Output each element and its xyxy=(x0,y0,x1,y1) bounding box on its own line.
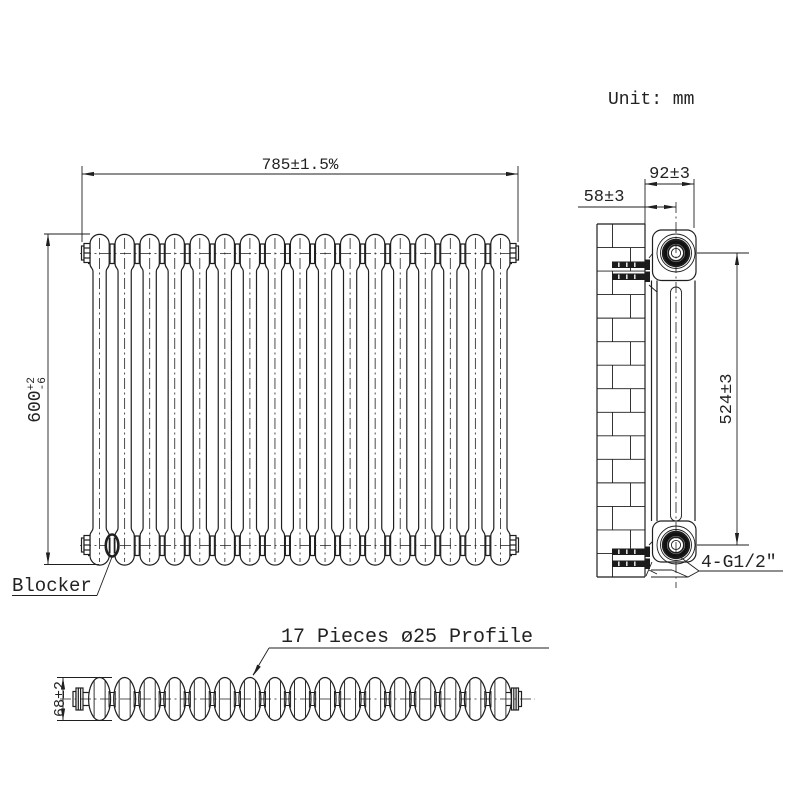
bung-top-left xyxy=(82,244,91,263)
front-width-dim-label: 785±1.5% xyxy=(262,156,339,174)
side-depth-dim-label: 92±3 xyxy=(649,165,690,184)
side-wall-to-center-dim-label: 58±3 xyxy=(584,188,625,207)
blocker-plug xyxy=(106,535,119,557)
side-port-center-dim-label: 524±3 xyxy=(718,373,737,424)
unit-note: Unit: mm xyxy=(608,90,694,110)
front-height-dim-label: 600+2-6 xyxy=(26,377,49,423)
front-view xyxy=(80,234,520,565)
bung-bottom-left xyxy=(82,536,91,555)
top-profile-label: 17 Pieces ø25 Profile xyxy=(281,626,533,649)
top-depth-dim-label: 68±2 xyxy=(52,681,69,717)
ports-label: 4-G1/2″ xyxy=(701,553,777,573)
radiator-technical-drawing: Unit: mm 785±1.5% 600+2-6 Blocker 92±3 5… xyxy=(0,0,800,800)
bung-bottom-right xyxy=(510,536,519,555)
blocker-label: Blocker xyxy=(12,575,92,597)
bung-top-right xyxy=(510,244,519,263)
